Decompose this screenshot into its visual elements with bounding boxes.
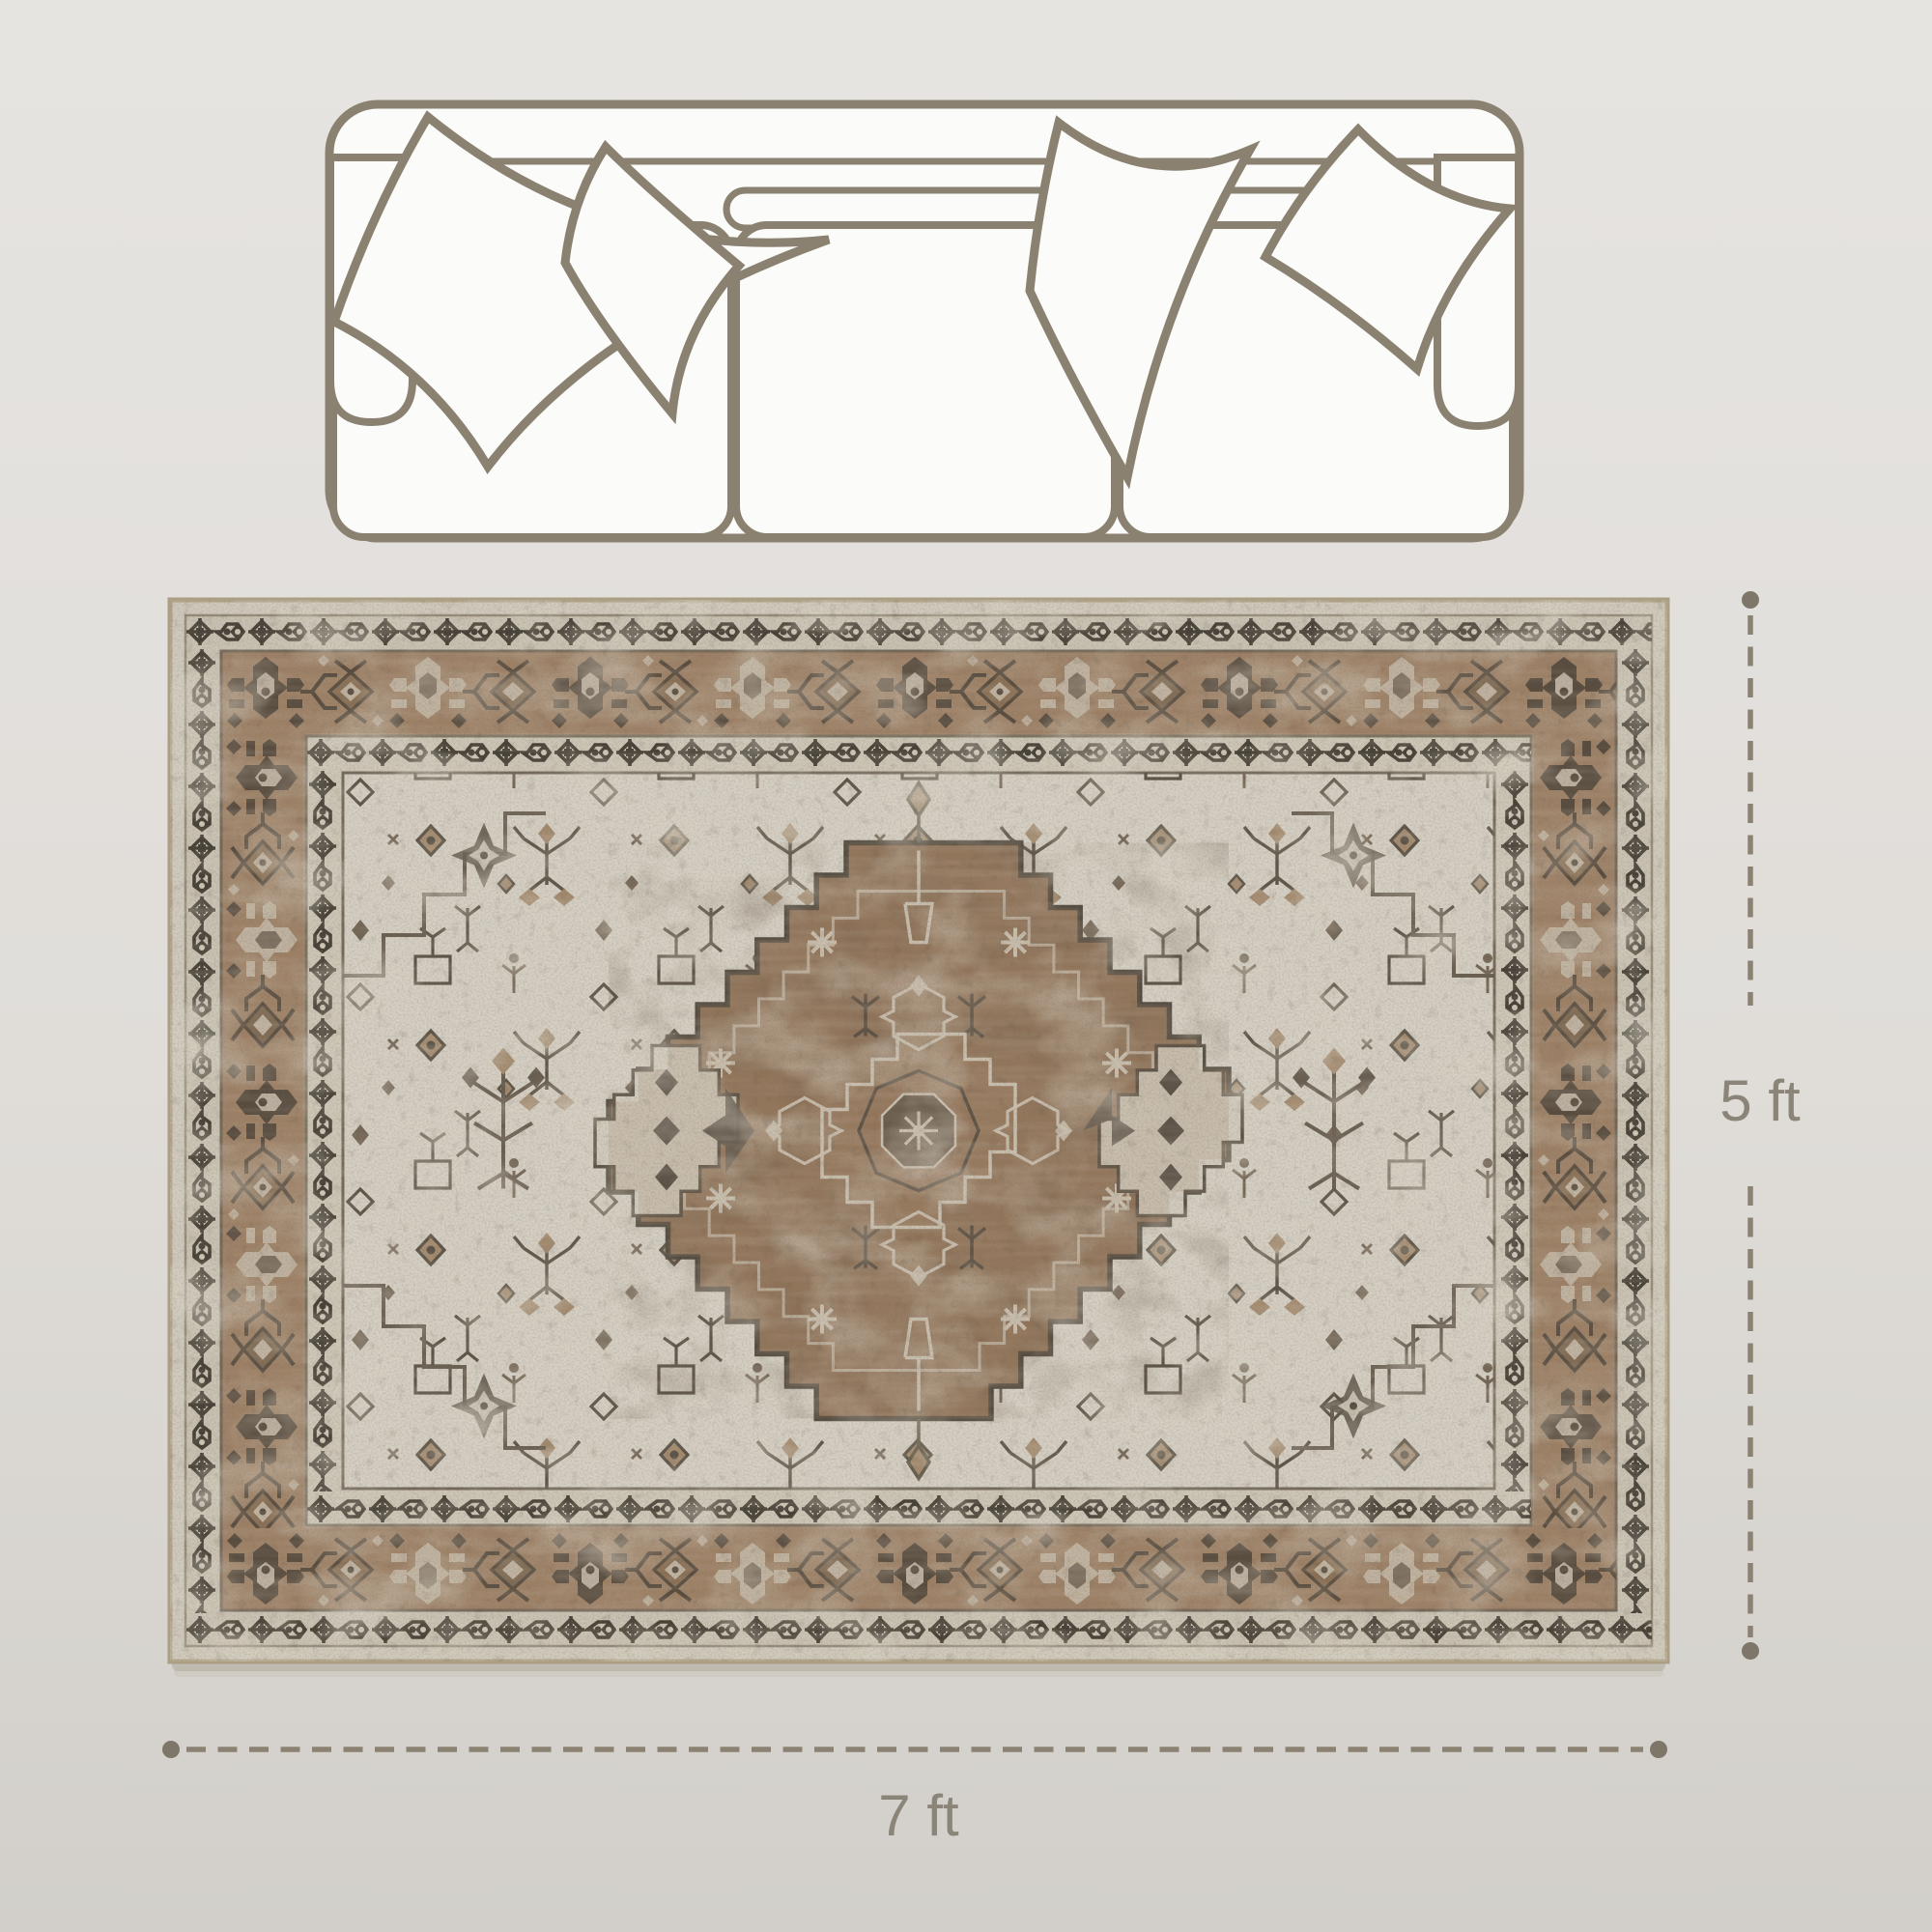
svg-text:7 ft: 7 ft xyxy=(878,1783,959,1848)
svg-text:5 ft: 5 ft xyxy=(1719,1068,1801,1133)
